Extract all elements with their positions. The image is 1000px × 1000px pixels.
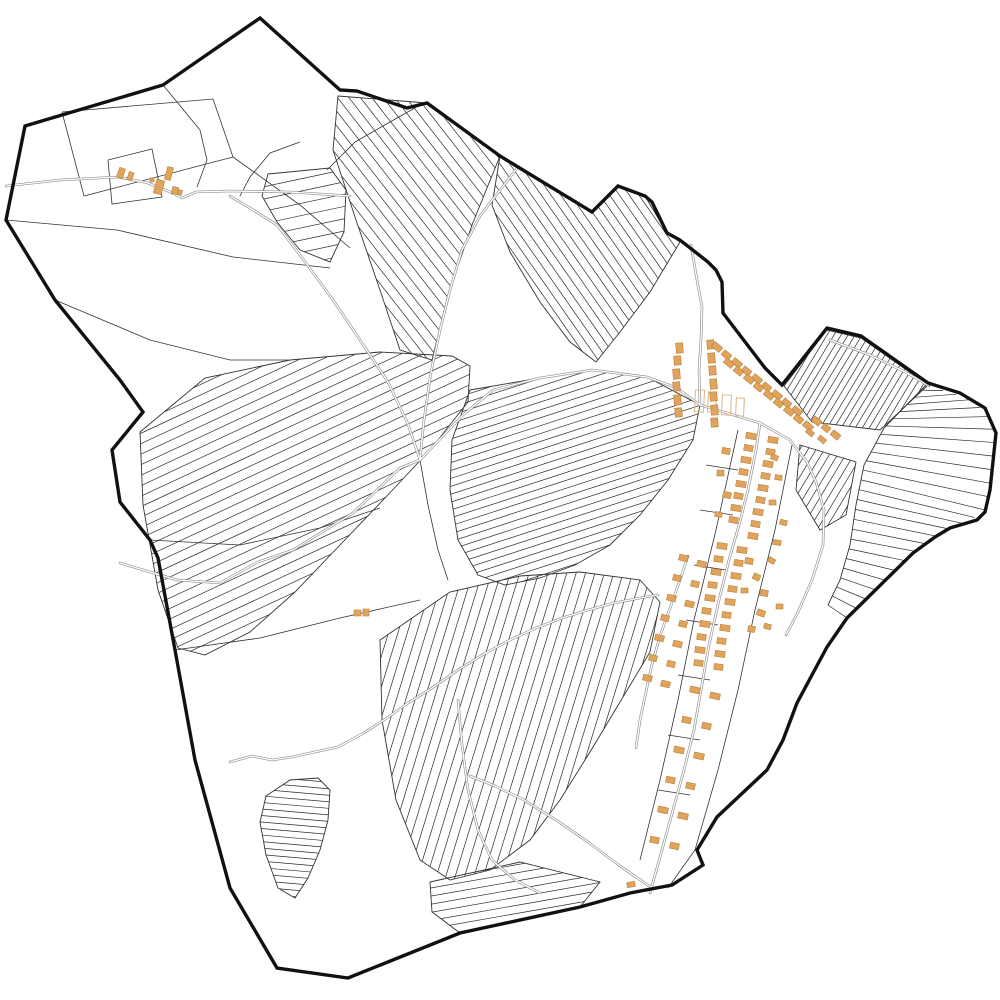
road-casing (230, 595, 658, 762)
building-footprint (751, 520, 761, 527)
building-footprint (695, 646, 706, 653)
map-canvas (0, 0, 1000, 1000)
building-footprint (669, 842, 679, 850)
building-footprint (729, 516, 739, 523)
building-footprint (752, 573, 761, 581)
building-footprint (736, 480, 747, 488)
building-footprint (767, 557, 776, 565)
building-footprint (768, 436, 779, 444)
building-footprint (717, 637, 727, 644)
parcel-outline (658, 790, 690, 795)
building-footprint (709, 366, 717, 376)
building-footprint (793, 414, 804, 424)
building-footprint (776, 604, 783, 609)
building-footprint (779, 519, 787, 526)
building-footprint (821, 423, 831, 433)
building-footprint (710, 379, 718, 390)
strip-field-zone (206, 747, 383, 930)
building-footprint (756, 609, 766, 617)
road-casing (691, 245, 702, 405)
building-footprint (676, 343, 684, 354)
building-footprint (763, 460, 774, 468)
building-footprint (770, 454, 778, 461)
building-footprint (674, 356, 682, 366)
building-footprint (741, 456, 752, 464)
road-casing (120, 370, 760, 583)
parcel-outline (175, 600, 420, 650)
building-footprint (705, 594, 716, 601)
building-footprint (717, 470, 724, 476)
building-footprint (773, 539, 782, 545)
building-footprint (760, 589, 769, 596)
road-casing (650, 423, 760, 893)
building-footprint (714, 663, 724, 670)
building-footprint (734, 559, 744, 566)
building-footprint (756, 496, 766, 503)
building-footprint (673, 369, 681, 380)
building-footprint (700, 620, 711, 627)
building-footprint (642, 674, 652, 682)
building-footprint (739, 468, 749, 475)
building-footprint (731, 504, 742, 512)
building-footprint (674, 395, 682, 406)
parcel-outline (62, 99, 233, 196)
building-footprint (681, 716, 691, 724)
building-footprint (354, 610, 361, 616)
parcel-outline (55, 300, 290, 360)
building-footprint (711, 405, 719, 416)
building-footprint (722, 611, 732, 618)
building-footprint (654, 634, 664, 642)
building-footprint (715, 511, 723, 517)
building-footprint (678, 620, 687, 628)
building-footprint (363, 609, 369, 616)
building-footprint (672, 640, 682, 648)
building-footprint (708, 353, 716, 364)
building-footprint (715, 650, 726, 657)
building-footprint (657, 806, 668, 814)
building-footprint (769, 500, 776, 505)
building-footprint (711, 418, 719, 428)
building-footprint (717, 542, 728, 549)
building-footprint (746, 432, 757, 440)
road-core (120, 370, 760, 583)
road-core (650, 423, 760, 893)
building-footprint (744, 444, 754, 451)
building-footprint (745, 557, 754, 564)
building-footprint (711, 568, 722, 575)
building-footprint (714, 555, 724, 562)
building-footprint (660, 680, 670, 688)
building-footprint (702, 607, 712, 614)
parcel-outline (706, 465, 738, 470)
building-outlines-layer (694, 390, 744, 416)
strip-field-zone (213, 117, 395, 313)
building-footprint (748, 532, 759, 540)
building-footprint (722, 491, 731, 499)
building-footprint (675, 408, 683, 418)
building-footprint (685, 782, 695, 790)
strip-field-zone (351, 252, 799, 704)
building-footprint (734, 492, 744, 499)
building-footprint (697, 633, 707, 640)
building-footprint (666, 660, 675, 668)
building-footprint (720, 624, 731, 631)
building-footprint (677, 812, 688, 820)
building-footprint (773, 398, 784, 408)
building-footprint (741, 588, 748, 593)
roads-layer (6, 167, 928, 893)
building-footprint (763, 389, 775, 400)
building-footprint (758, 484, 769, 492)
building-footprint (153, 179, 164, 195)
cadastral-map-svg (0, 0, 1000, 1000)
building-footprint (177, 190, 182, 196)
building-footprint (753, 382, 764, 392)
building-footprint (737, 546, 748, 553)
building-footprint (689, 686, 700, 694)
building-footprint (648, 654, 657, 662)
parcel-outline (240, 142, 300, 196)
building-footprint (733, 366, 744, 376)
building-footprint (761, 472, 771, 479)
building-footprint (728, 585, 738, 592)
building-footprint (710, 392, 718, 402)
building-footprint (696, 560, 706, 568)
building-footprint (723, 357, 735, 368)
building-footprint (684, 600, 694, 608)
building-footprint (673, 746, 684, 754)
parcel-outline (420, 460, 448, 580)
building-footprint (725, 598, 736, 605)
building-footprint (665, 776, 675, 784)
building-footprint (783, 405, 795, 416)
building-footprint (690, 580, 699, 588)
building-footprint (694, 659, 704, 666)
building-footprint (748, 625, 756, 632)
building-footprint (753, 508, 764, 516)
building-footprint (763, 623, 771, 630)
building-footprint (627, 881, 636, 888)
parcel-fan-layer (828, 383, 995, 618)
strip-field-zone (0, 189, 619, 819)
building-footprint (709, 692, 720, 700)
building-footprint (150, 178, 154, 182)
building-footprint (743, 373, 755, 384)
building-footprint (164, 166, 173, 180)
parcel-outline (668, 445, 792, 888)
building-footprint (701, 722, 711, 730)
building-footprint (830, 430, 841, 440)
building-footprint (649, 836, 659, 844)
building-footprint (708, 581, 718, 588)
building-footprint (673, 382, 681, 392)
building-footprint-outline (736, 398, 745, 416)
building-footprint (805, 428, 814, 437)
building-footprint (775, 474, 783, 480)
building-footprint (817, 435, 826, 444)
building-footprint (722, 447, 731, 454)
building-footprint (693, 752, 704, 760)
building-footprint (731, 572, 742, 579)
parcel-outline (668, 735, 700, 740)
